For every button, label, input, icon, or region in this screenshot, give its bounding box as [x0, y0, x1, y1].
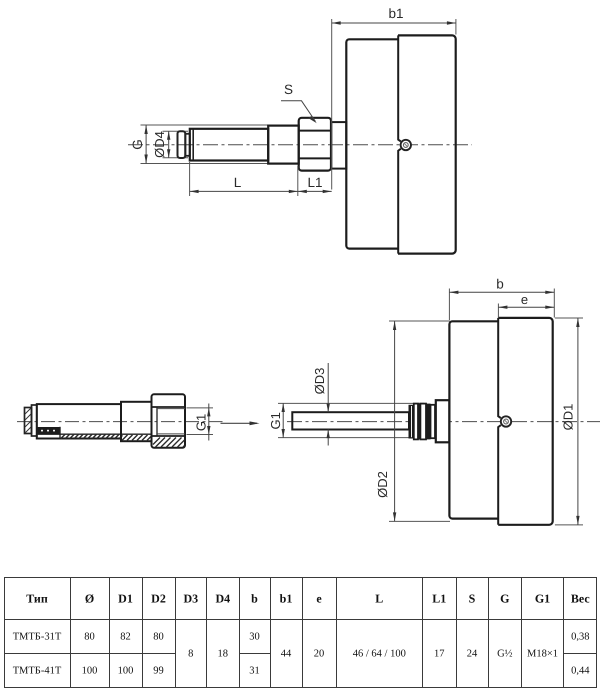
svg-text:100: 100: [118, 666, 134, 677]
svg-text:17: 17: [434, 649, 445, 660]
svg-text:Вес: Вес: [571, 592, 590, 606]
svg-text:24: 24: [467, 649, 478, 660]
svg-text:8: 8: [188, 649, 193, 660]
svg-text:G1: G1: [535, 592, 550, 606]
svg-text:L: L: [234, 175, 242, 190]
svg-text:e: e: [316, 592, 322, 606]
svg-text:46 / 64 / 100: 46 / 64 / 100: [353, 649, 406, 660]
svg-text:ТМТБ-41Т: ТМТБ-41Т: [13, 666, 62, 677]
svg-text:S: S: [284, 82, 293, 97]
svg-text:Тип: Тип: [26, 592, 48, 606]
svg-text:80: 80: [84, 632, 95, 643]
svg-text:b1: b1: [388, 6, 403, 21]
svg-text:L1: L1: [307, 175, 322, 190]
svg-text:D1: D1: [118, 592, 133, 606]
svg-text:ØD3: ØD3: [312, 368, 327, 395]
svg-text:ТМТБ-31Т: ТМТБ-31Т: [13, 632, 62, 643]
svg-text:e: e: [521, 292, 528, 307]
svg-text:G1: G1: [194, 414, 209, 431]
svg-text:M18×1: M18×1: [527, 649, 558, 660]
svg-text:G1: G1: [268, 412, 283, 429]
svg-text:b: b: [496, 277, 504, 292]
svg-text:99: 99: [153, 666, 164, 677]
svg-text:30: 30: [249, 632, 260, 643]
svg-text:b1: b1: [280, 592, 293, 606]
svg-text:0,44: 0,44: [571, 666, 590, 677]
svg-text:18: 18: [218, 649, 229, 660]
svg-text:31: 31: [249, 666, 260, 677]
svg-text:b: b: [251, 592, 258, 606]
svg-text:ØD4: ØD4: [152, 131, 167, 158]
svg-text:D2: D2: [151, 592, 166, 606]
svg-text:20: 20: [314, 649, 325, 660]
svg-text:82: 82: [120, 632, 131, 643]
svg-text:G: G: [130, 139, 145, 150]
svg-text:G: G: [500, 592, 509, 606]
svg-text:100: 100: [82, 666, 98, 677]
svg-text:D4: D4: [215, 592, 230, 606]
svg-text:44: 44: [281, 649, 292, 660]
svg-text:ØD2: ØD2: [375, 471, 390, 498]
svg-text:Ø: Ø: [85, 592, 94, 606]
svg-text:D3: D3: [183, 592, 198, 606]
svg-text:80: 80: [153, 632, 164, 643]
svg-text:ØD1: ØD1: [561, 404, 576, 431]
svg-text:0,38: 0,38: [571, 632, 589, 643]
svg-text:G½: G½: [497, 649, 513, 660]
svg-text:L1: L1: [432, 592, 446, 606]
svg-text:L: L: [375, 592, 383, 606]
svg-text:S: S: [469, 592, 476, 606]
